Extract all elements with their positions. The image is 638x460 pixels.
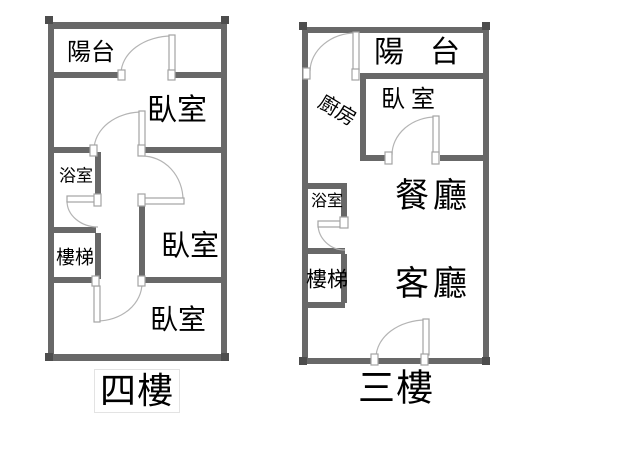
wall-balcony-left [54,72,120,78]
wall-balcony-right [175,72,221,78]
door-swing-arc [67,201,98,227]
door-swing-arc [310,33,356,71]
corner-post [299,357,307,365]
door-swing-arc [376,320,426,358]
wall-stairs-bottom [52,277,92,283]
room-label-bedroom-upper-4f: 臥室 [147,96,207,126]
wall-bedroom1-left [54,147,91,153]
room-label-bedroom-lower-4f: 臥室 [150,306,206,334]
corner-post [45,16,53,24]
wall-bedroom1-right [145,147,221,153]
door-leaf [433,116,439,154]
room-label-bathroom-4f: 浴室 [59,168,93,185]
door-jamb [94,194,101,206]
floor-caption-4f: 四樓 [94,369,180,413]
wall-bedrooms-div [145,277,221,283]
door-jamb [421,354,428,365]
corner-post [482,357,490,365]
room-label-bathroom-3f: 浴室 [311,194,343,210]
door-jamb [352,69,359,80]
wall-bathroom-top [305,183,345,189]
door-jamb [168,70,175,80]
door-jamb [385,152,392,164]
room-label-dining-room-3f: 餐廳 [395,179,471,213]
floor-caption-3f: 三樓 [358,370,434,407]
wall-right [221,22,227,361]
wall-left [48,22,54,361]
door-jamb [90,145,97,156]
door-jamb [138,276,145,286]
wall-stairs-vert [95,233,101,279]
wall-kitchen-vert [360,73,366,159]
wall-bedroom-right [440,155,489,161]
wall-balcony-div [360,73,489,79]
door-leaf [423,319,429,355]
door-jamb [138,194,145,206]
wall-top [302,27,489,33]
wall-bedroom-left [360,155,386,161]
door-jamb [340,217,348,228]
door-leaf [169,35,175,72]
door-jamb [371,354,378,365]
door-jamb [92,276,99,286]
wall-bottom [302,358,489,364]
wall-bottom [48,354,227,361]
room-label-balcony-3f: 陽台 [374,38,486,68]
door-swing-arc [121,36,172,74]
door-jamb [303,68,310,79]
door-leaf [94,286,100,322]
door-jamb [118,70,125,80]
wall-bath-stairs [52,227,96,233]
door-swing-arc [392,117,436,155]
floorplan-canvas: 陽台 臥室 浴室 樓梯 臥室 臥室 四樓 陽台 廚房 臥室 餐廳 浴室 樓梯 客… [0,0,638,460]
room-label-stairs-3f: 樓梯 [306,270,348,291]
corner-post [221,353,229,361]
room-label-stairs-4f: 樓梯 [56,249,94,268]
door-leaf [67,196,95,202]
wall-top [48,22,227,29]
door-swing-arc [97,283,142,321]
corner-post [482,22,490,30]
door-leaf [353,32,359,70]
door-jamb [432,152,439,164]
corner-post [299,22,307,30]
room-label-living-room-3f: 客廳 [395,267,471,301]
door-leaf [142,198,184,204]
door-swing-arc [142,156,183,200]
wall-stairs-bottom [305,302,345,308]
room-label-bedroom-3f: 臥室 [381,88,441,112]
wall-bathroom-vert [95,152,101,196]
room-label-bedroom-middle-4f: 臥室 [161,233,219,262]
corner-post [221,16,229,24]
wall-corridor-vert [139,205,145,279]
door-swing-arc [94,112,142,150]
corner-post [45,353,53,361]
door-jamb [138,145,145,156]
room-label-balcony-4f: 陽台 [67,41,115,65]
